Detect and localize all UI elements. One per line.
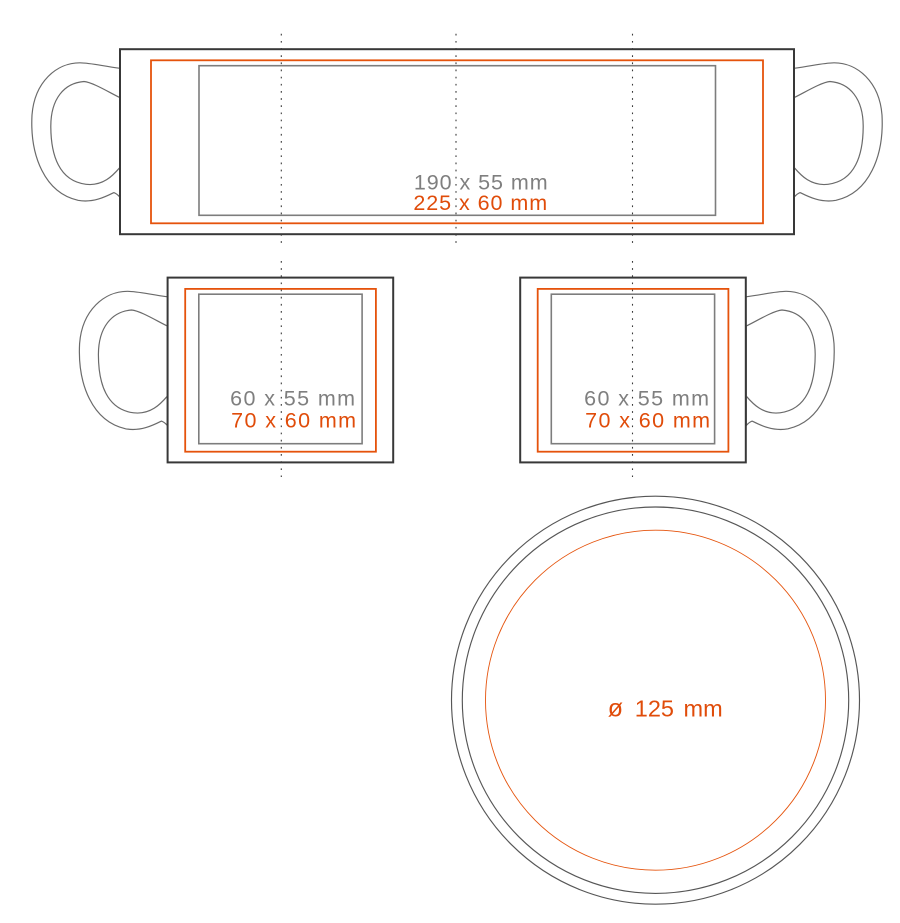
svg-text:225 x 60 mm: 225 x 60 mm <box>413 191 548 215</box>
svg-text:70 x 60 mm: 70 x 60 mm <box>585 409 711 433</box>
svg-text:125: 125 <box>635 696 674 722</box>
svg-text:ø: ø <box>608 695 623 723</box>
svg-text:mm: mm <box>684 696 723 722</box>
svg-text:60 x 55 mm: 60 x 55 mm <box>230 386 356 410</box>
svg-text:60 x 55 mm: 60 x 55 mm <box>584 386 710 410</box>
svg-text:70 x 60 mm: 70 x 60 mm <box>231 409 357 433</box>
